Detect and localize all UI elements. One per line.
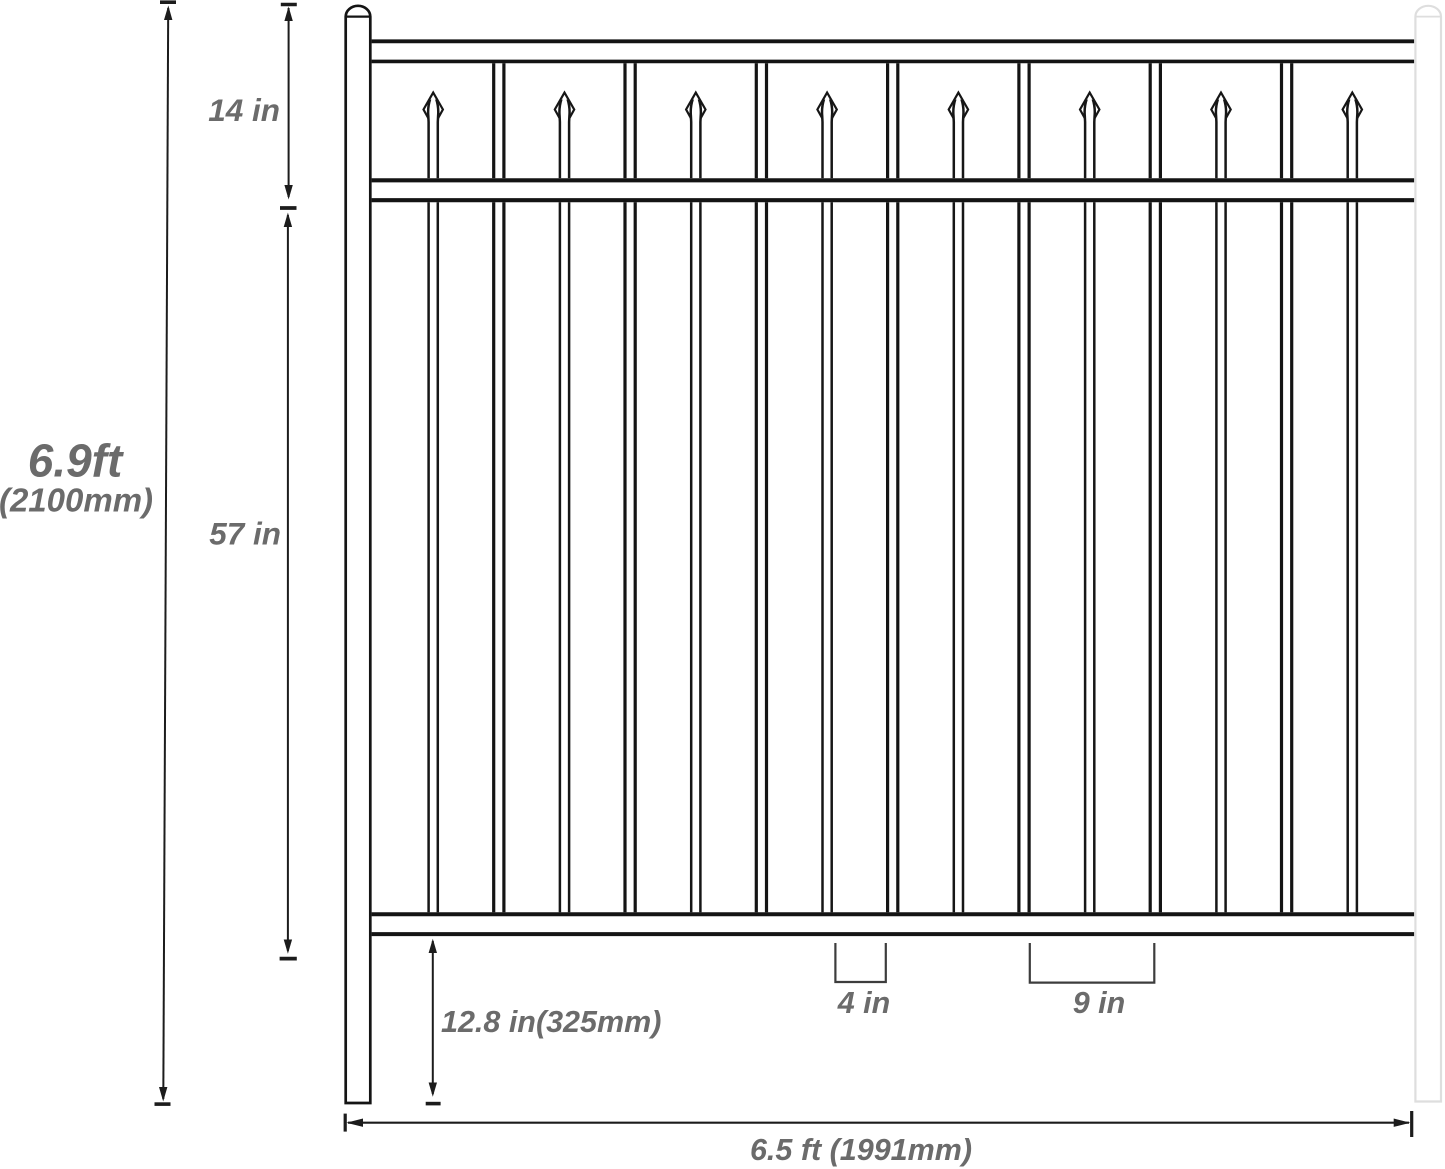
svg-text:12.8 in(325mm): 12.8 in(325mm) — [441, 1005, 661, 1039]
svg-text:6.5 ft (1991mm): 6.5 ft (1991mm) — [750, 1133, 972, 1167]
svg-text:57 in: 57 in — [209, 515, 281, 551]
svg-text:(2100mm): (2100mm) — [0, 482, 153, 519]
svg-text:4 in: 4 in — [837, 986, 891, 1020]
svg-text:6.9ft: 6.9ft — [28, 435, 124, 487]
svg-text:9 in: 9 in — [1073, 986, 1126, 1020]
svg-text:14 in: 14 in — [208, 92, 280, 128]
